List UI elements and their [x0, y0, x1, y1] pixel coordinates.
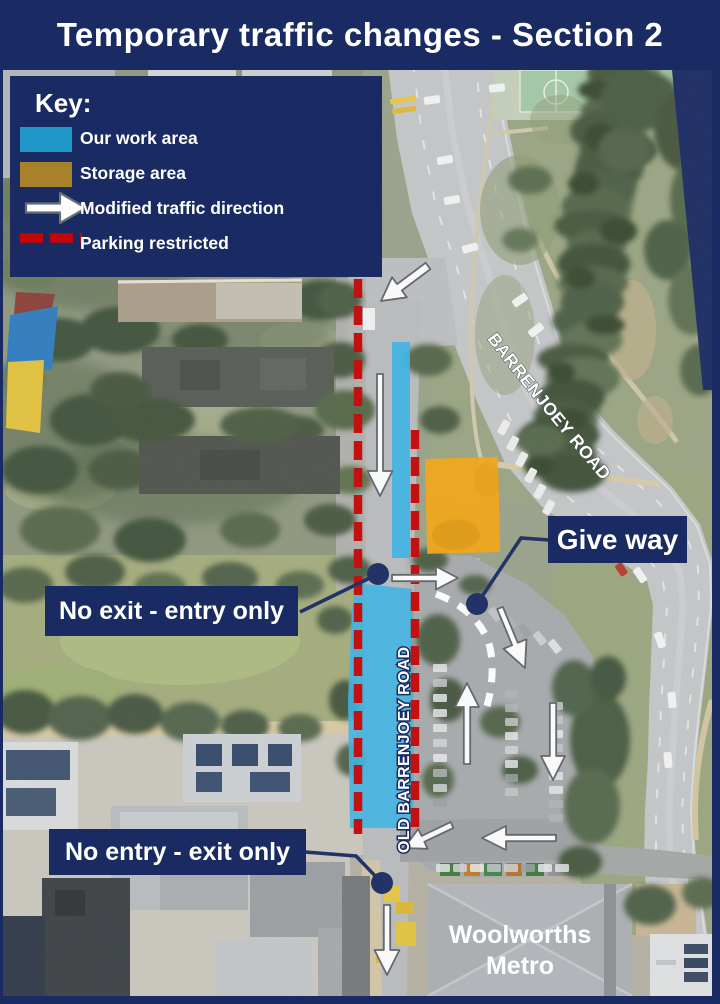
svg-text:Woolworths: Woolworths	[449, 921, 592, 949]
svg-text:OLD BARRENJOEY ROAD: OLD BARRENJOEY ROAD	[396, 647, 413, 853]
svg-text:Metro: Metro	[486, 952, 554, 980]
